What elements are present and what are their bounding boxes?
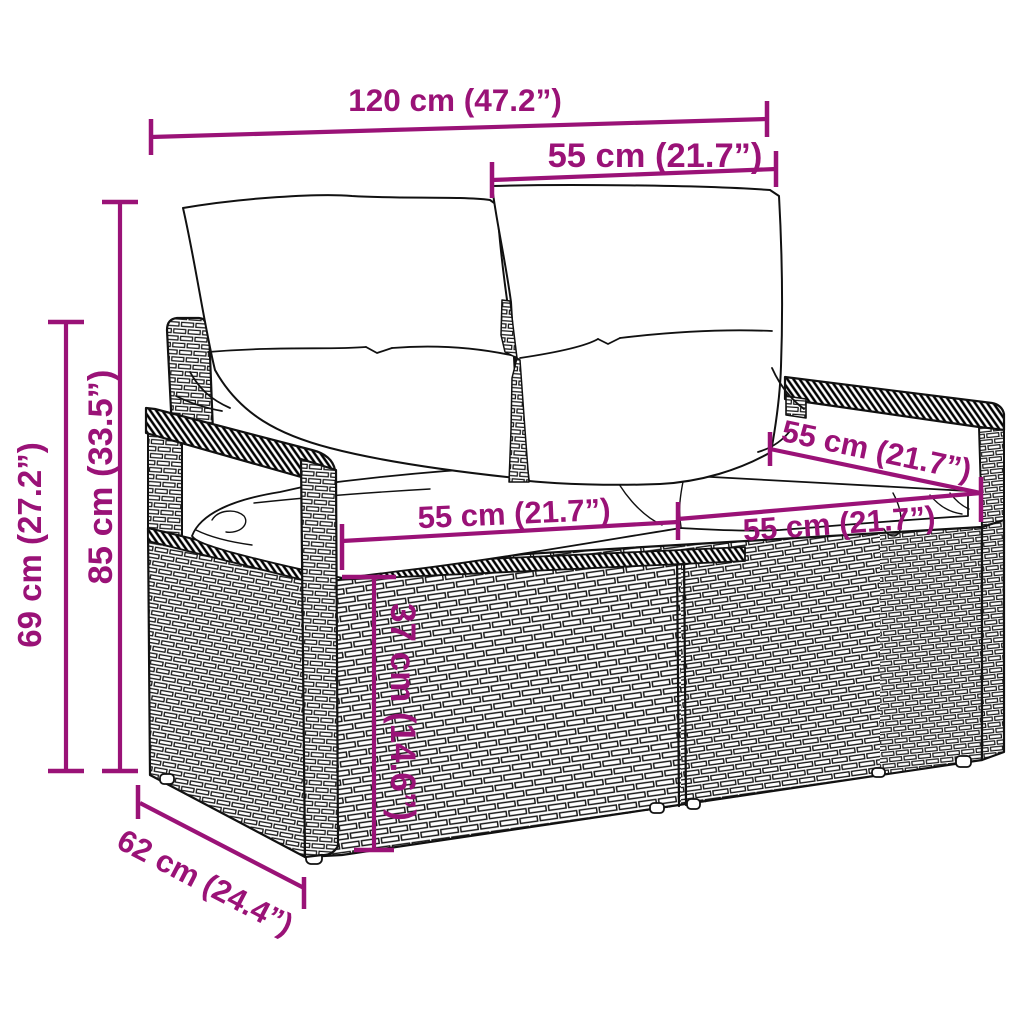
svg-text:55 cm (21.7”): 55 cm (21.7”): [548, 137, 763, 175]
svg-text:37 cm (14.6”): 37 cm (14.6”): [383, 603, 422, 821]
svg-text:85 cm (33.5”): 85 cm (33.5”): [82, 370, 120, 585]
svg-text:120 cm (47.2”): 120 cm (47.2”): [348, 82, 562, 118]
svg-text:69 cm (27.2”): 69 cm (27.2”): [11, 442, 48, 647]
